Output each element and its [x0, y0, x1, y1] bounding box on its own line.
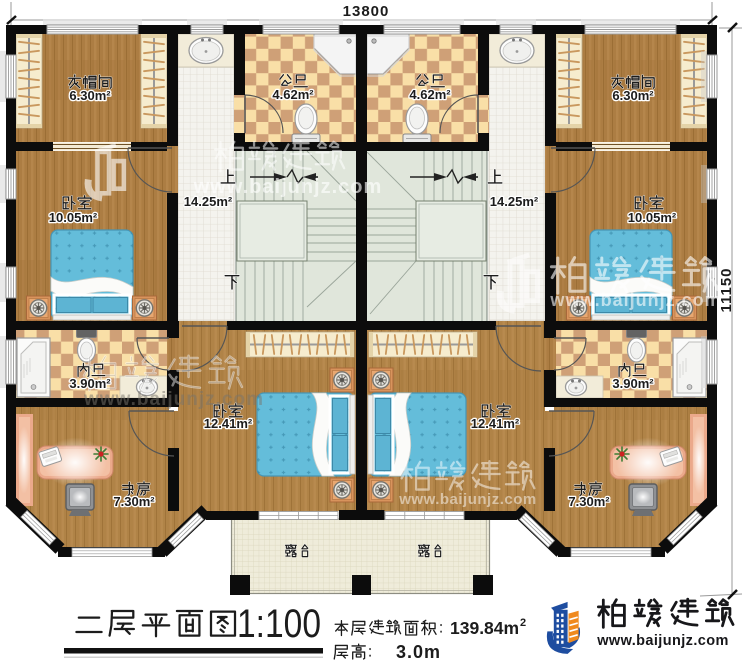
- svg-text:10.05m²: 10.05m²: [49, 210, 98, 225]
- svg-text:12.41m²: 12.41m²: [471, 416, 520, 431]
- svg-text:4.62m²: 4.62m²: [272, 87, 314, 102]
- svg-text:7.30m²: 7.30m²: [568, 494, 610, 509]
- svg-text:3.90m²: 3.90m²: [69, 376, 111, 391]
- svg-text:7.30m²: 7.30m²: [113, 494, 155, 509]
- svg-text:www.baijunjz.com: www.baijunjz.com: [596, 633, 729, 649]
- svg-text:13800: 13800: [343, 3, 390, 20]
- svg-text:6.30m²: 6.30m²: [69, 88, 111, 103]
- svg-text:1:100: 1:100: [237, 602, 321, 646]
- svg-text:2: 2: [520, 617, 526, 629]
- svg-text:www.baijunjz.com: www.baijunjz.com: [398, 491, 536, 508]
- svg-text:12.41m²: 12.41m²: [204, 416, 253, 431]
- svg-text:14.25m²: 14.25m²: [490, 194, 539, 209]
- svg-text:10.05m²: 10.05m²: [628, 210, 677, 225]
- svg-text:3.0m: 3.0m: [396, 642, 441, 662]
- svg-text:www.baijunjz.com: www.baijunjz.com: [549, 290, 721, 310]
- svg-text:14.25m²: 14.25m²: [184, 194, 233, 209]
- svg-text:3.90m²: 3.90m²: [612, 376, 654, 391]
- svg-text:139.84m: 139.84m: [450, 618, 519, 638]
- svg-text:6.30m²: 6.30m²: [612, 88, 654, 103]
- svg-text:4.62m²: 4.62m²: [409, 87, 451, 102]
